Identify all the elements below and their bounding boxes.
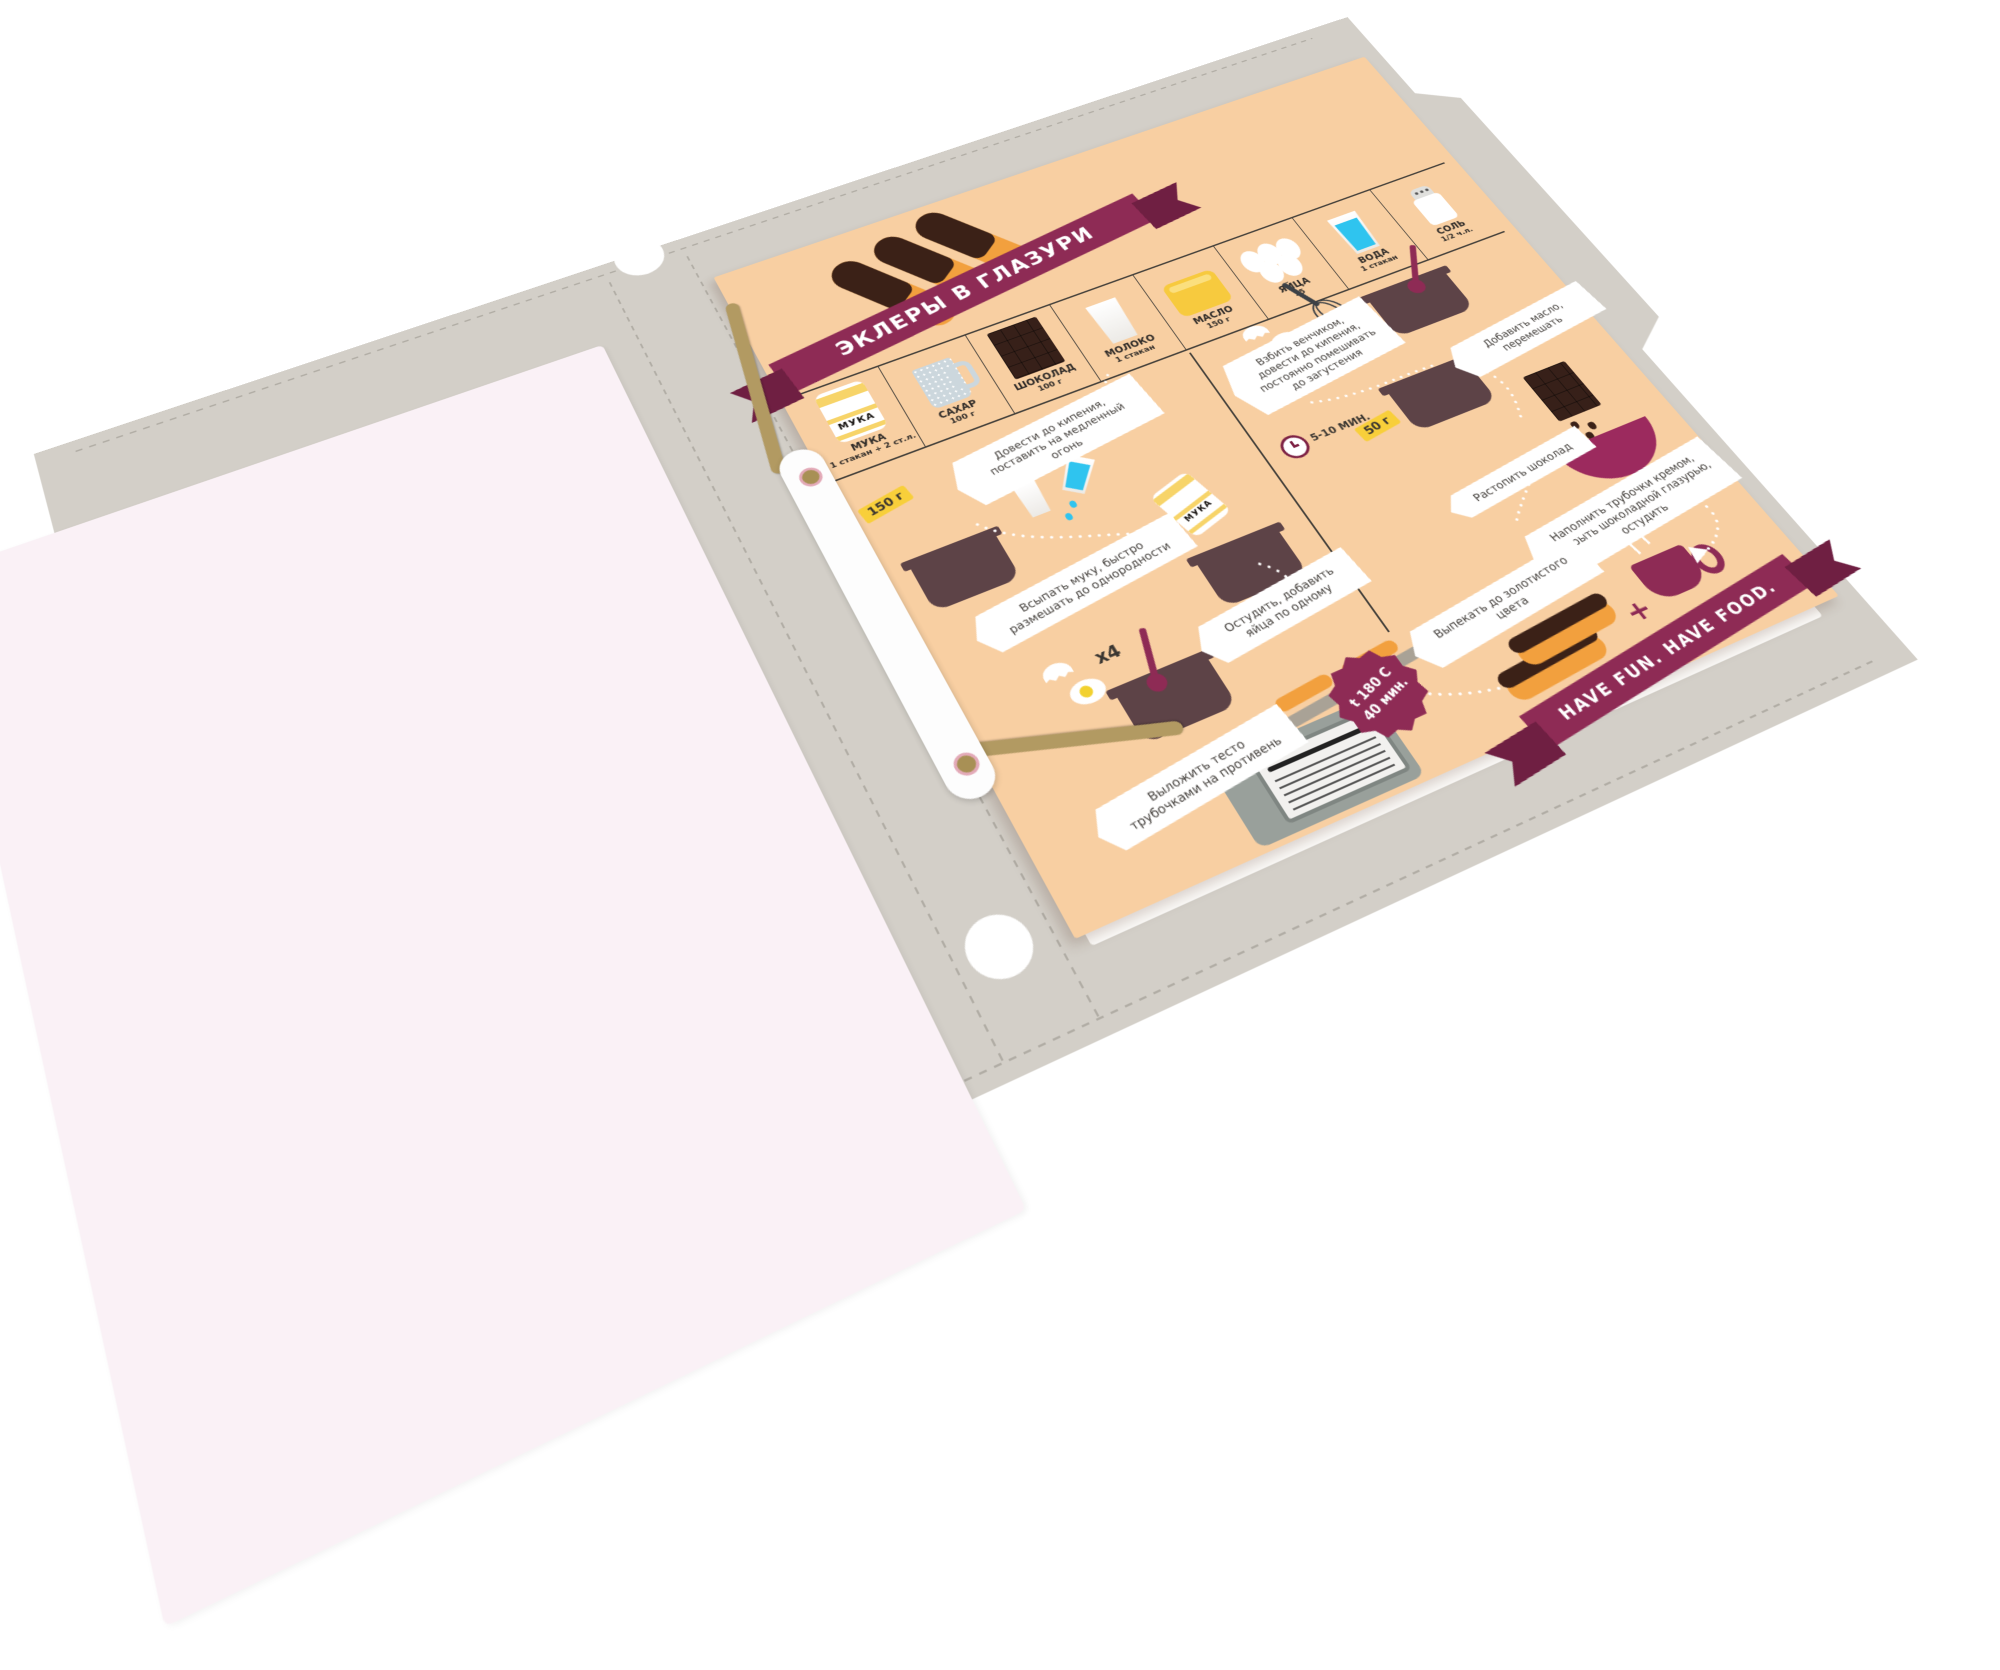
fastener-hole-bottom bbox=[949, 749, 983, 779]
water-drop-icon bbox=[1064, 512, 1074, 521]
open-folder-scene: ЭКЛЕРЫ В ГЛАЗУРИ МУКА МУКА 1 стакан + 2 … bbox=[4, 1, 2000, 1613]
butter-amount-tag: 150 г bbox=[857, 485, 915, 524]
spine-hole-top bbox=[607, 232, 672, 281]
chocolate-drip-icon bbox=[1586, 421, 1598, 430]
pot-icon bbox=[909, 533, 1021, 612]
cracked-egg-icon bbox=[1065, 674, 1111, 709]
egg-shell-icon bbox=[1038, 659, 1077, 690]
chocolate-bar-icon bbox=[1523, 361, 1602, 422]
eggs-count-label: х4 bbox=[1091, 641, 1125, 668]
spine-hole-bottom bbox=[953, 904, 1045, 990]
plus-sign: + bbox=[1618, 593, 1661, 629]
fastener-hole-top bbox=[796, 465, 827, 490]
water-drop-icon bbox=[1068, 500, 1078, 509]
